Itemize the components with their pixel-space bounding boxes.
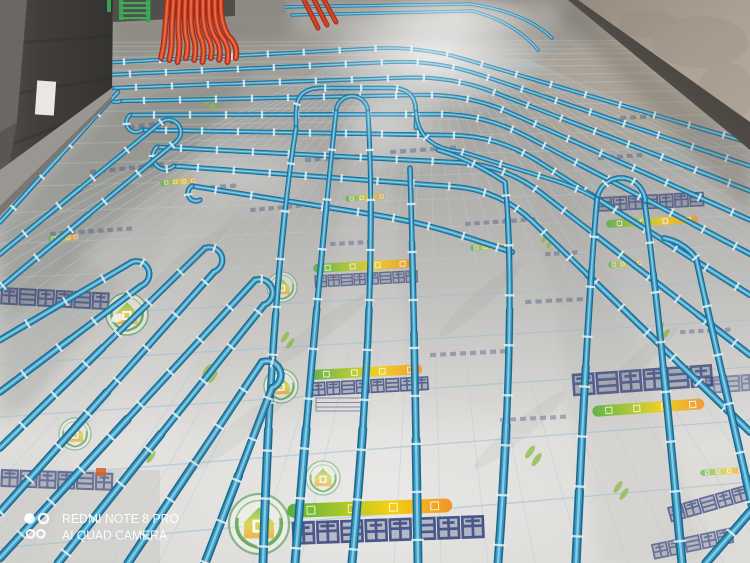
svg-text:REDMI NOTE 8 PRO: REDMI NOTE 8 PRO <box>62 511 179 526</box>
svg-text:AI QUAD CAMERA: AI QUAD CAMERA <box>62 528 167 543</box>
